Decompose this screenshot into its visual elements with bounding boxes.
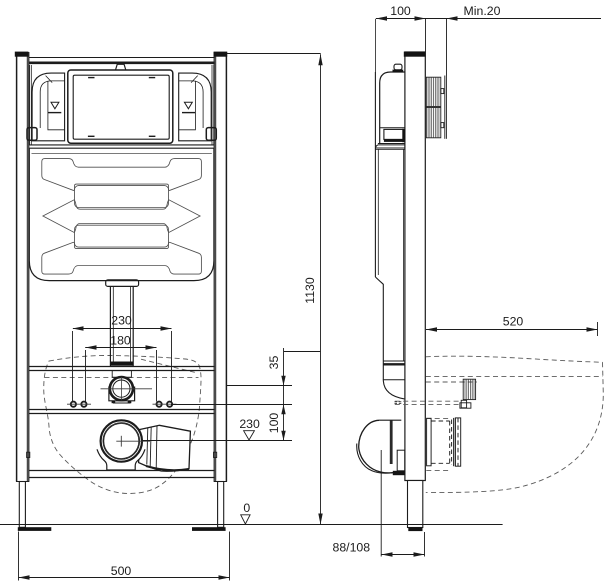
svg-text:180: 180 [110, 333, 131, 347]
svg-text:100: 100 [390, 4, 411, 18]
svg-text:35: 35 [267, 356, 281, 370]
svg-text:230: 230 [239, 417, 260, 431]
svg-text:0: 0 [243, 501, 250, 515]
svg-text:Min.20: Min.20 [464, 4, 501, 18]
svg-text:100: 100 [267, 413, 281, 434]
svg-text:500: 500 [111, 564, 132, 578]
svg-text:520: 520 [503, 315, 524, 329]
svg-text:88/108: 88/108 [332, 540, 370, 554]
svg-text:1130: 1130 [303, 277, 317, 304]
svg-text:230: 230 [111, 314, 132, 328]
